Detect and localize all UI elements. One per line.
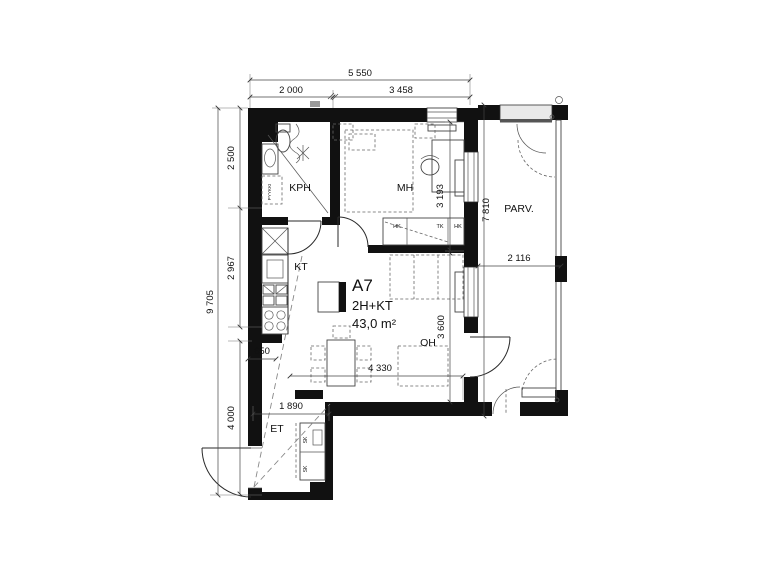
unit-layout: 2H+KT [352,298,393,313]
chair [311,346,325,360]
chair [333,326,350,338]
floor-plan-drawing: 5 550 2 000 3 458 9 705 2 500 2 967 4 00… [0,0,768,576]
dim-balcony-width: 2 116 [507,253,530,264]
kitchen-island [318,282,346,312]
chair [311,368,325,382]
closet-label-2: SK [303,465,309,472]
dim-living-depth: 3 600 [436,315,447,339]
room-label-balcony: PARV. [504,203,534,215]
dining-table [327,340,355,386]
floor-plan-page: 5 550 2 000 3 458 9 705 2 500 2 967 4 00… [0,0,768,576]
balcony-partition-doors [493,124,558,414]
toilet-tank [276,124,290,132]
bathroom-door [288,221,321,254]
kitchen-appliances [262,228,346,334]
room-label-bedroom: MH [397,182,413,194]
balcony-bench [522,388,556,397]
dim-left-total: 9 705 [205,290,216,314]
counter-end [252,334,282,343]
rug [398,346,448,386]
wardrobe-label-2: TK [436,224,443,230]
bedroom-north-window [427,108,457,131]
entry-fixtures [254,256,330,487]
sight-line [254,404,330,487]
radiator [455,160,464,196]
wardrobe [383,218,464,245]
sink [263,285,287,305]
desk-chair [421,156,439,176]
room-label-kitchen: KT [294,261,308,273]
washbasin [265,149,276,167]
radiator [428,125,456,131]
unit-code: A7 [352,276,373,295]
laundry-label: PYYKKI [267,184,272,201]
wall-joint-marker [310,101,320,107]
balcony-side-glazing [550,97,568,404]
dim-top-total: 5 550 [348,68,372,79]
shower-head [297,145,309,161]
dim-left-upper: 2 500 [226,146,237,170]
bed [345,130,413,212]
dim-top-right: 3 458 [389,85,413,96]
wardrobe-label-1: HK [393,224,401,230]
cabinet [262,255,288,283]
dim-left-middle: 2 967 [226,256,237,280]
bedroom-door [338,217,368,247]
unit-area: 43,0 m² [352,316,397,331]
wardrobe-label-3: HK [454,224,462,230]
shower-hose [290,124,300,163]
dim-bedroom-depth: 3 193 [435,184,446,208]
bedroom-east-window [455,152,478,202]
sofa [390,255,463,299]
dining-set [311,326,371,386]
dim-counter-depth: 650 [254,346,270,357]
entry-column [310,482,325,498]
laundry-space [262,176,282,204]
entry-closet [296,423,325,480]
dim-living-width: 4 330 [368,363,392,374]
balcony-top-glazing [500,105,552,123]
living-east-window [455,267,478,317]
dim-top-left: 2 000 [279,85,303,96]
room-label-entry: ET [270,423,284,435]
room-label-bathroom: KPH [289,182,311,194]
chair [357,346,371,360]
stove [262,307,288,334]
kitchen-bench [295,390,323,399]
dim-entry-width: 1 890 [279,401,303,412]
dim-left-lower: 4 000 [226,406,237,430]
balcony-door [470,337,510,377]
closet-label-1: SK [303,436,309,443]
room-label-living: OH [420,337,436,349]
dim-balcony-depth: 7 810 [481,198,492,222]
